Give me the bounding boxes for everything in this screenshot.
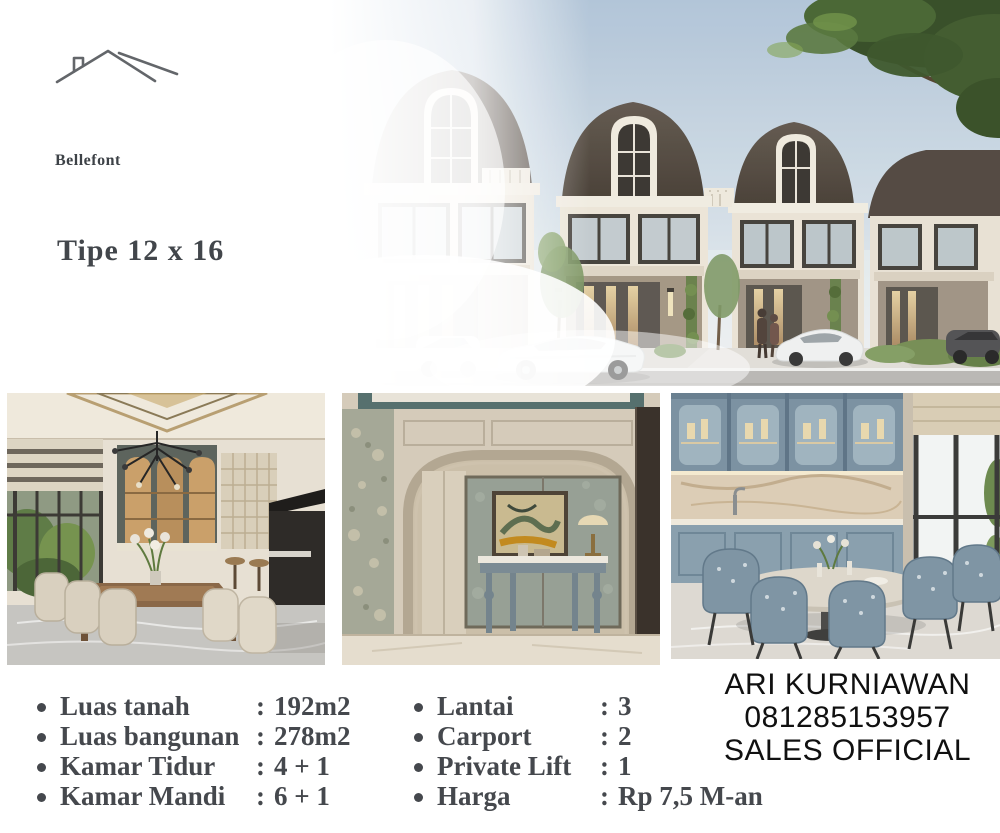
spec-separator: : [600,751,609,782]
contact-block: ARI KURNIAWAN 081285153957 SALES OFFICIA… [690,668,1000,767]
roofline-logo-icon [45,30,185,95]
spec-value: 192m2 [274,691,351,722]
spec-label: Kamar Mandi [60,781,256,812]
page-title: Bellefont [55,152,375,170]
spec-separator: : [256,691,265,722]
spec-separator: : [600,691,609,722]
spec-label: Kamar Tidur [60,751,256,782]
spec-label: Harga [437,781,600,812]
bullet-icon [37,763,46,772]
bullet-icon [414,703,423,712]
spec-row-luas-tanah: Luas tanah : 192m2 [37,691,351,721]
page-subtitle: Tipe 12 x 16 [57,234,357,268]
spec-value: 2 [618,721,632,752]
bullet-icon [37,703,46,712]
contact-role: SALES OFFICIAL [690,734,1000,767]
contact-name: ARI KURNIAWAN [690,668,1000,701]
kitchen-dining-illustration [671,393,1000,659]
spec-value: 1 [618,751,632,782]
photo-exterior [330,0,1000,386]
dining-room-illustration [7,393,325,665]
spec-row-luas-bangunan: Luas bangunan : 278m2 [37,721,351,751]
spec-label: Luas bangunan [60,721,256,752]
flyer: Bellefont Tipe 12 x 16 [0,0,1000,833]
spec-label: Lantai [437,691,600,722]
photo-foyer [342,393,660,665]
spec-label: Luas tanah [60,691,256,722]
bullet-icon [37,793,46,802]
spec-separator: : [600,721,609,752]
spec-label: Private Lift [437,751,600,782]
spec-separator: : [256,721,265,752]
bullet-icon [414,733,423,742]
photo-dining-room [7,393,325,665]
spec-row-kamar-mandi: Kamar Mandi : 6 + 1 [37,781,351,811]
bullet-icon [414,793,423,802]
spec-separator: : [600,781,609,812]
spec-row-kamar-tidur: Kamar Tidur : 4 + 1 [37,751,351,781]
foyer-illustration [342,393,660,665]
spec-value: 3 [618,691,632,722]
spec-value: Rp 7,5 M-an [618,781,763,812]
bullet-icon [414,763,423,772]
spec-value: 278m2 [274,721,351,752]
spec-separator: : [256,781,265,812]
bullet-icon [37,733,46,742]
exterior-render-illustration [330,0,1000,386]
spec-value: 6 + 1 [274,781,330,812]
spec-row-harga: Harga : Rp 7,5 M-an [414,781,763,811]
photo-kitchen-dining [671,393,1000,659]
spec-value: 4 + 1 [274,751,330,782]
spec-separator: : [256,751,265,782]
specs-list-left: Luas tanah : 192m2 Luas bangunan : 278m2… [37,691,351,811]
spec-label: Carport [437,721,600,752]
contact-phone: 081285153957 [690,701,1000,734]
